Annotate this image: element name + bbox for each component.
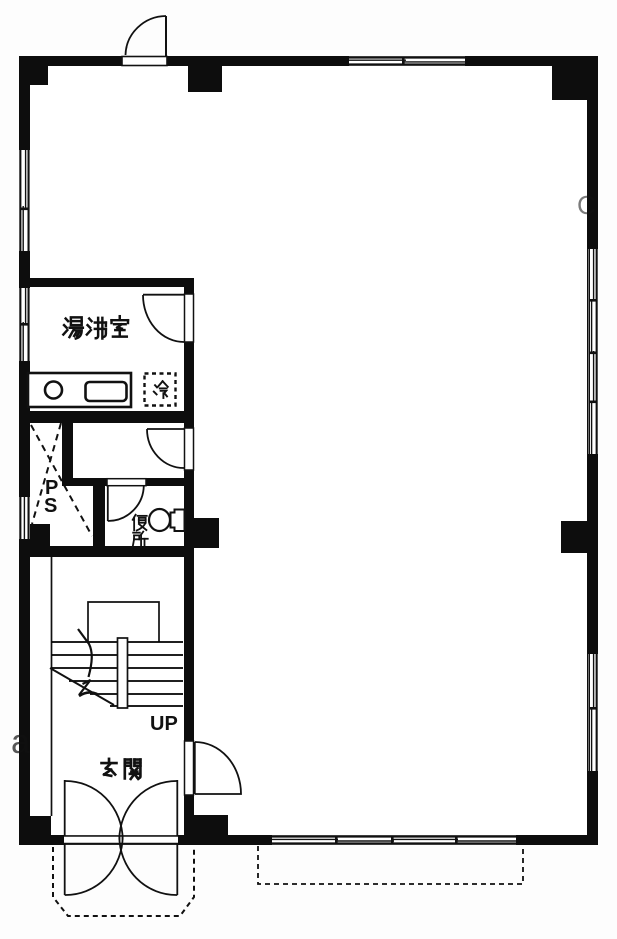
svg-text:UP: UP: [150, 713, 178, 735]
svg-text:a: a: [11, 723, 30, 761]
svg-text:C: C: [577, 190, 596, 220]
svg-text:S: S: [44, 495, 57, 517]
